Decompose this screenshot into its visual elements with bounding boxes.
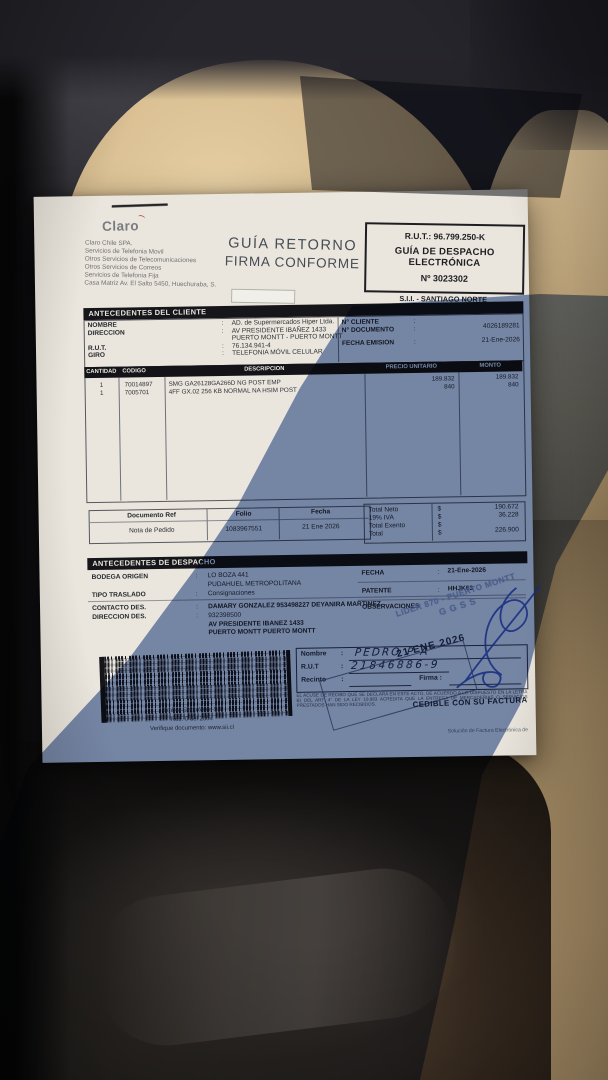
- items-col-monto: MONTO: [458, 362, 522, 369]
- pen-mark: [111, 199, 168, 213]
- ref-col-fecha: Fecha: [281, 508, 361, 516]
- dispatch-label: DIRECCION DES.: [92, 613, 146, 621]
- item-monto: 189.832: [458, 373, 518, 381]
- colon: :: [196, 612, 198, 619]
- colon: :: [222, 320, 224, 327]
- total-label: Total: [369, 530, 383, 537]
- colon: :: [341, 650, 343, 657]
- issuer-rut: R.U.T.: 96.799.250-K: [367, 230, 523, 242]
- items-col-cantidad: CANTIDAD: [84, 369, 118, 376]
- item-cantidad: 1: [85, 390, 119, 398]
- item-codigo: 7005701: [125, 389, 150, 396]
- dispatch-label: CONTACTO DES.: [92, 604, 146, 612]
- ref-fecha-value: 21 Ene 2026: [281, 522, 361, 530]
- item-precio: 189.832: [364, 375, 454, 383]
- partial-stamp-box: [231, 289, 295, 304]
- rut-document-box: R.U.T.: 96.799.250-K GUÍA DE DESPACHO EL…: [364, 222, 525, 295]
- currency-sign: $: [437, 505, 441, 512]
- colon: :: [414, 339, 416, 346]
- client-field-value: TELEFONIA MÓVIL CELULAR: [232, 348, 323, 356]
- emission-date: 21-Ene-2026: [424, 336, 520, 345]
- item-codigo: 70014897: [124, 381, 152, 388]
- reception-nombre-label: Nombre: [301, 650, 327, 657]
- currency-sign: $: [438, 529, 442, 536]
- total-value: 36.228: [444, 511, 519, 519]
- colon: :: [196, 590, 198, 597]
- colon: :: [196, 603, 198, 610]
- footer-note: Solución de Factura Electrónica de: [372, 727, 528, 735]
- document-number: Nº 3023302: [366, 272, 522, 284]
- total-value: 226.900: [444, 526, 519, 534]
- currency-sign: $: [438, 513, 442, 520]
- client-field-label: DIRECCION: [88, 329, 125, 337]
- client-right-label: N° CLIENTE: [342, 319, 380, 327]
- dispatch-label: TIPO TRASLADO: [92, 591, 146, 599]
- colon: :: [414, 318, 416, 325]
- client-field-label: R.U.T.: [88, 344, 106, 351]
- dark-top-right-corner: [470, 0, 608, 150]
- colon: :: [222, 327, 224, 334]
- dispatch-fecha-value: 21-Ene-2026: [447, 567, 486, 575]
- signature-scribble: [448, 582, 545, 688]
- barcode-caption-line: Verifique documento: www.sii.cl: [101, 723, 283, 735]
- client-field-value: 76.134.941-4: [232, 342, 271, 350]
- colon: :: [341, 663, 343, 670]
- dispatch-label: BODEGA ORIGEN: [92, 573, 149, 581]
- barcode-caption: Timbre Electrónico SII Res. 0 del 2004 V…: [101, 705, 283, 735]
- reception-rut-label: R.U.T: [301, 663, 319, 670]
- dispatch-value: PUDAHUEL METROPOLITANA: [208, 579, 302, 587]
- colon: :: [222, 342, 224, 349]
- stamp-line: GUÍA RETORNO: [205, 235, 381, 255]
- dispatch-value: LO BOZA 441: [208, 572, 249, 580]
- colon: :: [222, 350, 224, 357]
- total-label: Total Neto: [368, 506, 398, 513]
- company-info-line: Casa Matriz Av. El Salto 5450, Huechurab…: [84, 279, 254, 290]
- dispatch-patente-label: PATENTE: [362, 587, 392, 594]
- item-precio: 840: [365, 383, 455, 391]
- item-cantidad: 1: [85, 382, 119, 390]
- colon: :: [438, 587, 440, 594]
- dispatch-value: PUERTO MONTT PUERTO MONTT: [208, 628, 315, 637]
- colon: :: [196, 572, 198, 579]
- total-value: 190.672: [443, 503, 518, 511]
- item-monto: 840: [459, 381, 519, 389]
- total-label: Total Exento: [369, 522, 405, 530]
- paper-sheet: Claro Claro Chile SPA. Servicios de Tele…: [34, 189, 537, 763]
- colon: :: [414, 325, 416, 332]
- client-field-label: GIRO: [88, 352, 105, 359]
- total-label: 19% IVA: [369, 514, 394, 521]
- items-col-codigo: CODIGO: [122, 368, 146, 374]
- currency-sign: $: [438, 521, 442, 528]
- dispatch-value: 932398500: [208, 612, 241, 620]
- client-right-label: N° DOCUMENTO: [342, 326, 394, 334]
- ref-folio-value: 1083967551: [209, 525, 279, 533]
- ref-col-folio: Folio: [209, 510, 279, 518]
- document-type: ELECTRÓNICA: [366, 256, 522, 269]
- photo-of-dispatch-document: Claro Claro Chile SPA. Servicios de Tele…: [0, 0, 608, 1080]
- dispatch-value: Consignaciones: [208, 589, 255, 597]
- dispatch-value: AV PRESIDENTE IBANEZ 1433: [208, 619, 304, 627]
- colon: :: [437, 569, 439, 576]
- dispatch-contact-value: DAMARY GONZALEZ 953498227 DEYANIRA MARTI…: [208, 601, 381, 611]
- client-document-number: 4026189281: [424, 322, 520, 331]
- client-right-label: FECHA EMISION: [342, 339, 394, 347]
- return-signature-stamp: GUÍA RETORNO FIRMA CONFORME: [204, 235, 381, 272]
- client-field-label: NOMBRE: [88, 322, 117, 329]
- claro-logo: Claro: [102, 218, 139, 234]
- dispatch-fecha-label: FECHA: [361, 569, 384, 576]
